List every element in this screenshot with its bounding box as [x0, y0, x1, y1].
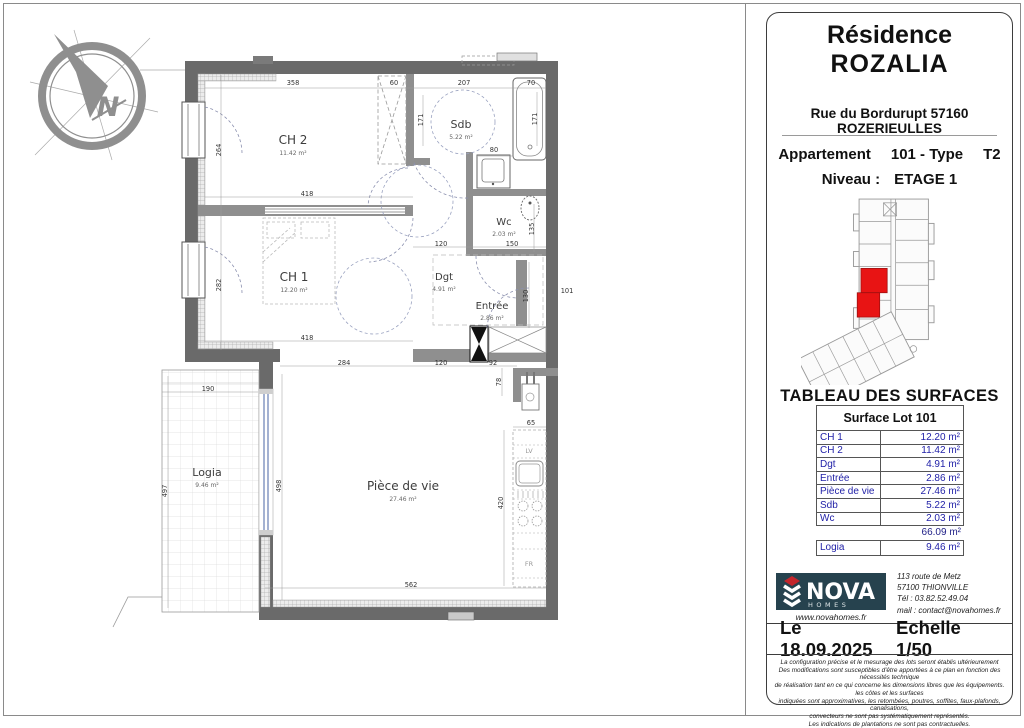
appliance-label: FR: [525, 560, 534, 568]
room-label: Pièce de vie: [367, 479, 439, 493]
surfaces-table-title: TABLEAU DES SURFACES: [767, 387, 1012, 406]
dimension-label: 70: [527, 79, 535, 87]
surface-row-label: Dgt: [817, 458, 881, 471]
door-swing-arcs: [205, 107, 529, 330]
apartment-number-type: 101 - Type: [891, 146, 963, 163]
surface-row-label: Entrée: [817, 472, 881, 485]
dimension-label: 562: [405, 581, 418, 589]
surface-row-value: 11.42 m²: [881, 445, 963, 458]
room-label: CH 1: [280, 270, 309, 284]
surface-table-rows: CH 112.20 m²CH 211.42 m²Dgt4.91 m²Entrée…: [816, 431, 964, 526]
bathtub: [513, 78, 546, 160]
text-line: La configuration précise et le mesurage …: [773, 659, 1006, 667]
washbasin: [477, 155, 510, 188]
surface-row-label: Sdb: [817, 499, 881, 512]
footer-row: Le 18.09.2025 Echelle 1/50: [767, 624, 1012, 654]
text-line: Tél : 03.82.52.49.04: [897, 593, 1001, 604]
surface-table-row: Entrée2.86 m²: [817, 471, 963, 485]
text-line: mail : contact@novahomes.fr: [897, 605, 1001, 616]
dimension-label: 120: [435, 359, 448, 367]
dimension-label: 92: [489, 359, 497, 367]
apartment-type: T2: [983, 146, 1001, 163]
text-line: 57100 THIONVILLE: [897, 582, 1001, 593]
key-plan: [767, 193, 1012, 385]
panel-divider-line: [745, 3, 746, 715]
room-label: Wc: [496, 217, 511, 228]
surface-row-label: Pièce de vie: [817, 485, 881, 498]
dimension-label: 190: [202, 385, 215, 393]
residence-title-line1: Résidence: [767, 21, 1012, 50]
dimension-label: 135: [528, 223, 536, 236]
address-separator: [782, 135, 997, 136]
room-label: Entrée: [476, 300, 509, 312]
text-line: de réalisation tant en ce qui concerne l…: [773, 682, 1006, 697]
room-area-label: 2.03 m²: [492, 231, 516, 238]
surface-table-row: Sdb5.22 m²: [817, 498, 963, 512]
surface-row-value: 27.46 m²: [881, 485, 963, 498]
dimension-label: 418: [301, 190, 314, 198]
surface-table-row: CH 211.42 m²: [817, 444, 963, 458]
surface-row-value: 2.03 m²: [881, 513, 963, 526]
room-label: CH 2: [279, 133, 308, 147]
surface-row-value: 2.86 m²: [881, 472, 963, 485]
surface-table-row: Wc2.03 m²: [817, 512, 963, 526]
bottom-wall-sill: [448, 612, 474, 620]
room-area-label: 27.46 m²: [389, 496, 417, 503]
nova-homes-logo: NOVA HOMES: [776, 573, 886, 610]
dimension-label: 60: [390, 79, 398, 87]
logia-row: Logia 9.46 m²: [816, 540, 964, 556]
toilet: [521, 196, 539, 220]
dimension-label: 80: [490, 146, 498, 154]
level-value: ETAGE 1: [894, 171, 957, 188]
surfaces-total: 66.09 m²: [816, 526, 964, 539]
closet-entree: [489, 327, 546, 353]
dimension-label: 150: [506, 240, 519, 248]
surfaces-table-header: Surface Lot 101: [816, 405, 964, 431]
level-row: Niveau : ETAGE 1: [767, 171, 1012, 188]
text-line: 113 route de Metz: [897, 571, 1001, 582]
room-area-label: 9.46 m²: [195, 482, 219, 489]
text-line: Les indications de plantations ne sont p…: [773, 721, 1006, 728]
dimension-label: 207: [458, 79, 471, 87]
text-line: Des modifications sont susceptibles d'êt…: [773, 667, 1006, 682]
water-heater: [522, 372, 539, 410]
surface-table-row: Pièce de vie27.46 m²: [817, 484, 963, 498]
window-ch2: [182, 102, 205, 158]
apartment-row: Appartement 101 - Type T2: [767, 146, 1012, 163]
logia-terrace: [113, 370, 259, 627]
surface-row-label: Wc: [817, 513, 881, 526]
dimension-label: 101: [561, 287, 574, 295]
surface-row-value: 5.22 m²: [881, 499, 963, 512]
dimension-label: 282: [215, 279, 223, 292]
dimension-label: 418: [301, 334, 314, 342]
apartment-label: Appartement: [778, 146, 871, 163]
surface-row-value: 12.20 m²: [881, 431, 963, 444]
logia-row-value: 9.46 m²: [881, 541, 963, 555]
footer-separator-bottom: [767, 654, 1012, 655]
dimension-label: 264: [215, 144, 223, 157]
surface-table-row: CH 112.20 m²: [817, 431, 963, 444]
room-area-label: 4.91 m²: [432, 286, 456, 293]
room-area-label: 5.22 m²: [449, 134, 473, 141]
dimension-label: 130: [522, 290, 530, 303]
nova-sub-text: HOMES: [808, 601, 849, 609]
room-area-label: 2.86 m²: [480, 315, 504, 322]
dimension-label: 420: [497, 497, 505, 510]
room-label: Dgt: [435, 272, 453, 283]
room-label: Sdb: [451, 118, 472, 131]
kitchen-sink: [516, 461, 543, 486]
nova-logo-diamond: [784, 576, 800, 586]
floor-plan-sheet: { "panel": { "residence_line1": "Résiden…: [0, 0, 1024, 724]
surface-row-label: CH 1: [817, 431, 881, 444]
surface-row-value: 4.91 m²: [881, 458, 963, 471]
cooktop-burners: [518, 501, 542, 526]
nova-logo-graphic: NOVA HOMES: [776, 573, 886, 610]
north-label: N: [97, 92, 120, 123]
logia-row-label: Logia: [817, 541, 881, 555]
title-block-panel: Résidence ROZALIA Rue du Bordurupt 57160…: [766, 12, 1013, 705]
floor-plan-drawing: N: [0, 0, 745, 724]
kitchen-drainer: [518, 491, 543, 498]
window-ch1: [182, 242, 205, 298]
dimension-label: 65: [527, 419, 535, 427]
room-area-label: 12.20 m²: [280, 287, 308, 294]
disclaimer-text: La configuration précise et le mesurage …: [773, 659, 1006, 728]
closet-corridor: [378, 76, 406, 164]
dimension-label: 171: [417, 114, 425, 127]
text-line: convecteurs ne sont pas systématiquement…: [773, 713, 1006, 721]
dimension-label: 358: [287, 79, 300, 87]
dimension-label: 498: [275, 480, 283, 493]
surfaces-table: Surface Lot 101 CH 112.20 m²CH 211.42 m²…: [816, 405, 964, 556]
dimension-label: 497: [161, 485, 169, 498]
surface-table-row: Dgt4.91 m²: [817, 457, 963, 471]
room-area-label: 11.42 m²: [279, 150, 307, 157]
pocket-door: [265, 207, 405, 214]
text-line: indiquées sont approximatives, les retom…: [773, 698, 1006, 713]
nova-contact-lines: 113 route de Metz57100 THIONVILLETél : 0…: [897, 571, 1001, 616]
level-label: Niveau :: [822, 171, 880, 188]
key-plan-drawing: [801, 193, 979, 385]
dimension-label: 284: [338, 359, 351, 367]
room-label: Logia: [192, 466, 221, 479]
compass-rose: N: [30, 30, 186, 160]
residence-address: Rue du Bordurupt 57160 ROZERIEULLES: [767, 106, 1012, 136]
entrance-door: [470, 326, 488, 362]
residence-title-line2: ROZALIA: [767, 50, 1012, 79]
dimension-label: 78: [495, 378, 503, 386]
dimension-label: 120: [435, 240, 448, 248]
appliance-label: LV: [525, 447, 533, 455]
sliding-bay-window: [259, 389, 273, 535]
surface-row-label: CH 2: [817, 445, 881, 458]
dimension-label: 171: [531, 113, 539, 126]
